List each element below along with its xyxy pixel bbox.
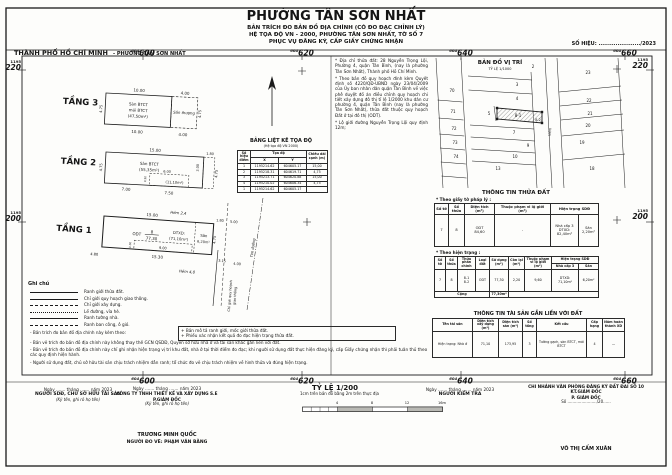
- col-header: Năm hoàn thành XD: [603, 319, 625, 332]
- planning-boundary-label-2: giao thông: [232, 287, 237, 305]
- dim-label: 1.80: [206, 152, 214, 156]
- floor3-annex-label: Sân thượng: [173, 110, 196, 116]
- current-land-row: 7 8 8-1 8-2 ODT 77,30 2,20 9,60 DTXD: 71…: [435, 270, 599, 292]
- parcel-label: 18: [589, 166, 595, 171]
- bottom-note-4: - Người sử dụng đất, chủ sở hữu tài sản …: [30, 360, 420, 365]
- land-info-title: THÔNG TIN THỬA ĐẤT: [434, 190, 598, 197]
- dim-label: 7.00: [122, 186, 132, 191]
- col-header: Diện tích xây dựng (m²): [473, 319, 499, 332]
- parcel-label: 7: [513, 130, 516, 135]
- cadastral-survey-sheet: PHƯỜNG TÂN SƠN NHẤT BẢN TRÍCH ĐO BẢN ĐỒ …: [0, 0, 672, 475]
- bottom-note-2: - Bản vẽ trích đo bản đồ địa chính này k…: [30, 340, 430, 345]
- yard-label: Sân: [200, 233, 208, 239]
- note-road-width: * Lộ giới đường Nguyễn Trọng Lội quy địn…: [335, 120, 428, 131]
- total-row: Cộng 77,30m²: [435, 292, 599, 298]
- scale-tick: 16m: [434, 401, 450, 405]
- dim-label: 10.00: [131, 129, 143, 135]
- coord-col-length: Chiều dài cạnh (m): [307, 151, 328, 164]
- col-header: Số tờ: [435, 257, 446, 270]
- note-address: * Địa chỉ thửa đất: 28 Nguyễn Trọng Lội,…: [335, 58, 428, 74]
- current-land-table: Số tờ Số thửa Thửa phân chính Loại đất S…: [434, 256, 599, 298]
- dim-label: 15.00: [149, 147, 161, 153]
- surveyor-name: NGƯỜI ĐO VẼ: PHẠM VĂN BẰNG: [107, 440, 227, 446]
- company-name: CÔNG TY TNHH THIẾT KẾ VÀ XÂY DỰNG S.E: [112, 391, 222, 396]
- dim-label: 4.75: [212, 236, 217, 244]
- alley-label-top: Hẻm 2,4: [170, 210, 187, 216]
- col-header: Còn lại (m²): [509, 257, 525, 270]
- coord-table: Số hiệu điểm Tọa độ Chiều dài cạnh (m) X…: [237, 150, 328, 193]
- parcel-label: 9: [527, 143, 530, 148]
- scale-subtitle: 1cm trên bản đồ bằng 2m trên thực địa: [300, 392, 400, 397]
- parcel-label: 71: [450, 109, 456, 114]
- dim-label: 15.00: [146, 212, 158, 218]
- floor2-area: (55,35m²): [139, 167, 160, 173]
- col-header: Tên tài sản: [433, 319, 473, 332]
- registry-signer-name: VÕ THỊ CẨM XUÂN: [514, 446, 658, 452]
- sign-instruction: (Ký tên, ghi rõ họ tên): [112, 402, 222, 407]
- floor3-text-2: mái BTCT: [129, 107, 149, 113]
- col-header: Số thửa: [449, 204, 465, 215]
- line-sample-dashdot: [30, 312, 78, 313]
- registry-office-block: CHI NHÁNH VĂN PHÒNG ĐĂNG KÝ ĐẤT ĐAI SỐ 1…: [514, 384, 658, 405]
- dim-label: 9.00: [159, 246, 167, 251]
- parcel-label: 4: [516, 96, 519, 101]
- parcel-label: 8-1: [515, 113, 522, 118]
- col-header: Thửa phân chính: [458, 257, 476, 270]
- dim-label: 15.30: [151, 254, 163, 260]
- dim-label: 3.15: [218, 259, 226, 264]
- parcel-label: 74: [453, 154, 459, 159]
- floor2-plan: TẦNG 2 Sàn BTCT (55,35m²) (11,10m²) 6.00…: [59, 143, 219, 198]
- scale-tick: 12: [401, 401, 413, 405]
- dim-label: 5.00: [230, 220, 238, 225]
- col-header: Số thửa: [446, 257, 458, 270]
- col-header: Sử dụng (m²): [490, 257, 509, 270]
- col-header: Thuộc phạm vi lộ giới (m²): [495, 204, 551, 215]
- parcel-label: 73: [452, 140, 458, 145]
- coord-col-y: Y: [279, 157, 307, 164]
- col-header: Sân: [579, 263, 599, 270]
- dim-label: 10.00: [133, 87, 145, 93]
- parcel-label: 23: [585, 70, 591, 75]
- col-header: Diện tích (m²): [465, 204, 495, 215]
- registry-doc-number: Số ......................./20......: [514, 400, 658, 405]
- dim-label: 4.80: [90, 252, 99, 257]
- dim-label: 0.30: [128, 241, 132, 248]
- legal-caption: * Theo giấy tờ pháp lý :: [436, 197, 491, 202]
- alley-edge-line: [213, 250, 218, 306]
- dim-label: 1.80: [216, 218, 224, 223]
- land-use-code: ODT: [132, 231, 142, 237]
- line-sample-dashed: [30, 305, 78, 306]
- line-sample-solid-bold: [30, 292, 78, 293]
- floor1-dtxd-label: DTXD:: [173, 230, 185, 236]
- location-map: BẢN ĐỒ VỊ TRÍ TỶ LỆ 1/1000 2 3 4 5 8-1 8…: [436, 57, 625, 188]
- scale-tick: 4: [331, 401, 343, 405]
- col-header: Diện tích sàn (m²): [499, 319, 523, 332]
- col-header: Nhà cấp 3: [552, 263, 579, 270]
- coord-row: 11195214.62604605.17: [238, 187, 328, 193]
- attachment-box: + Bản mô tả ranh giới, mốc giới thửa đất…: [178, 326, 396, 341]
- floor1-plan: TẦNG 1 ODT 8 77,30 DTXD: (71,10m²) Sân 6…: [55, 202, 239, 266]
- floor3-label: TẦNG 3: [63, 94, 99, 109]
- legend-title: Ghi chú: [28, 281, 49, 287]
- dim-label: 7.50: [164, 190, 174, 195]
- dim-label: 4.00: [233, 262, 241, 267]
- inspector-block: Ngày ....... tháng ....... năm 2023 NGƯỜ…: [415, 387, 505, 398]
- col-header: Thuộc phạm vi lộ giới (m²): [525, 257, 552, 270]
- parcel-label: 2: [532, 64, 535, 69]
- col-header: Hiện trạng SDĐ: [552, 257, 599, 264]
- current-caption: * Theo hiện trạng :: [436, 250, 480, 255]
- dim-label: 4.00: [178, 132, 188, 137]
- street-label: Hẻm: [548, 127, 553, 136]
- north-arrow-icon: [268, 76, 276, 126]
- attachment-2: + Phiếu xác nhận kết quả đo đạc hiện trạ…: [181, 333, 393, 338]
- scale-bar: [302, 406, 444, 414]
- dim-label: 0.30: [143, 176, 147, 183]
- bottom-note-3: - Bản vẽ trích đo bản đồ địa chính này c…: [30, 347, 430, 358]
- dim-label: 4.75: [99, 105, 103, 113]
- dim-label: 3.00: [196, 164, 200, 172]
- location-map-title: BẢN ĐỒ VỊ TRÍ: [478, 57, 522, 66]
- parcel-label: 70: [449, 88, 455, 93]
- parcel-area: 77,30: [146, 235, 158, 241]
- coord-col-x: X: [251, 157, 279, 164]
- scale-tick: 8: [366, 401, 378, 405]
- parcel-number: 8: [151, 229, 154, 234]
- parcel-label: 10: [512, 154, 518, 159]
- floor1-dtxd-value: (71,10m²): [169, 236, 189, 242]
- floor3-area: (47,50m²): [128, 113, 149, 119]
- parcel-label: 5: [488, 111, 491, 116]
- road-centerline-label: Tim đường: [250, 237, 257, 257]
- parcel-label: 22: [586, 98, 592, 103]
- coord-col-point: Số hiệu điểm: [238, 151, 251, 164]
- dim-label: 6.00: [163, 170, 171, 174]
- floor2-label: TẦNG 2: [60, 154, 96, 169]
- parcel-notes: * Địa chỉ thửa đất: 28 Nguyễn Trọng Lội,…: [335, 58, 428, 130]
- parcel-label: 13: [495, 166, 501, 171]
- dim-label: 4.00: [181, 90, 191, 95]
- dim-label: 4.75: [214, 170, 218, 178]
- asset-table: Tên tài sản Diện tích xây dựng (m²) Diện…: [432, 318, 625, 358]
- floor1-label: TẦNG 1: [56, 221, 92, 236]
- note-planning: * Theo bản đồ quy hoạch đính kèm Quyết đ…: [335, 76, 428, 118]
- parcel-label: 72: [451, 126, 457, 131]
- asset-row: Hiện trạng: Nhà ở 71,10 173,95 3 Tường g…: [433, 332, 625, 358]
- floor3-text-1: Sàn BTCT: [129, 101, 149, 107]
- parcel-label: 3: [516, 82, 519, 87]
- floor2-void-area: (11,10m²): [165, 180, 184, 185]
- floor3-plan: TẦNG 3 Sàn BTCT mái BTCT (47,50m²) Sân t…: [61, 84, 203, 138]
- bottom-note-1: - Bản trích đo bản đồ địa chính này kèm …: [30, 330, 175, 335]
- survey-company-block: Ngày ....... tháng ....... năm 2023 CÔNG…: [112, 386, 222, 407]
- col-header: Loại đất: [476, 257, 490, 270]
- dim-label: 4.75: [198, 110, 202, 118]
- asset-info-title: THÔNG TIN TÀI SẢN GẮN LIỀN VỚI ĐẤT: [432, 311, 624, 317]
- line-sample-solid: [30, 299, 78, 300]
- legal-land-row: 7 8 ODT84,60 - Nhà cấp 3 DTXD: 82,40m² S…: [435, 214, 599, 246]
- col-header: Hiện trạng SDĐ: [551, 204, 599, 215]
- col-header: Kết cấu: [537, 319, 587, 332]
- legal-land-table: Số tờ Số thửa Diện tích (m²) Thuộc phạm …: [434, 203, 599, 247]
- alley-label-bottom: Hẻm 4,0: [179, 268, 196, 274]
- coord-table-subtitle: (Hệ tọa độ VN 2000): [234, 144, 328, 148]
- coord-col-coords: Tọa độ: [251, 151, 307, 158]
- floor2-text-1: Sàn BTCT: [140, 161, 160, 167]
- director-name: TRƯƠNG MINH QUỐC: [112, 432, 222, 438]
- parcel-label: 20: [585, 123, 591, 128]
- line-sample-thin: [30, 318, 78, 319]
- parcel-label: 21: [587, 111, 593, 116]
- col-header: Số tờ: [435, 204, 449, 215]
- line-sample-dashed-thin: [30, 325, 78, 326]
- dim-label: 4.75: [99, 163, 103, 171]
- col-header: Cấp hạng: [587, 319, 603, 332]
- parcel-label: 8-2: [535, 118, 541, 122]
- location-map-scale: TỶ LỆ 1/1000: [488, 66, 512, 71]
- yard-area: 6,20m²: [197, 240, 210, 245]
- parcel-label: 19: [579, 140, 585, 145]
- inspector-title: NGƯỜI KIỂM TRA: [415, 392, 505, 398]
- col-header: Số tầng: [523, 319, 537, 332]
